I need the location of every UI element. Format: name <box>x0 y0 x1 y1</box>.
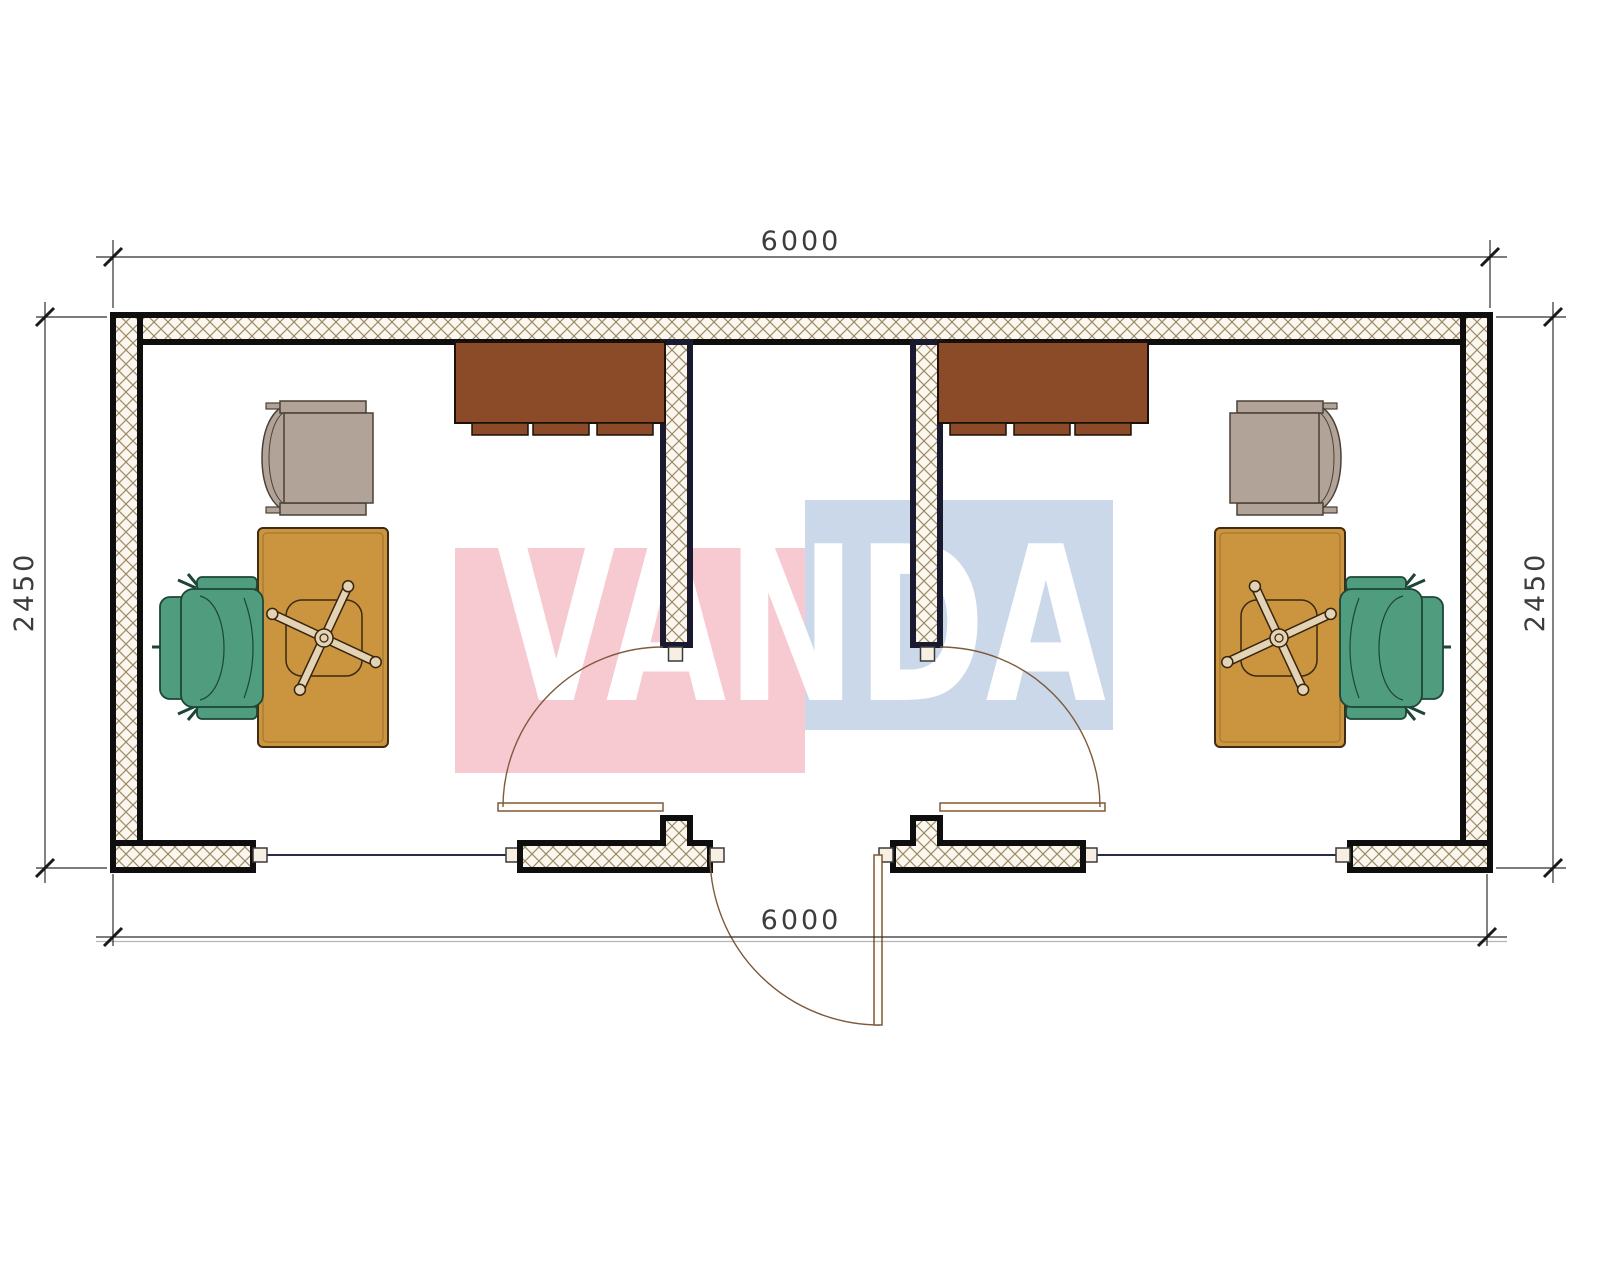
dimension-label-right: 2450 <box>1520 552 1551 633</box>
entry-door-swing-arc <box>710 855 880 1025</box>
dimension-label-top: 6000 <box>761 226 842 257</box>
floor-plan-sheet: VANDA 6000 6 <box>0 0 1600 1280</box>
entry-door-leaf <box>874 855 882 1025</box>
floor-plan-drawing: VANDA 6000 6 <box>0 0 1600 1280</box>
dimension-label-bottom: 6000 <box>761 905 842 936</box>
top-exterior-wall <box>113 315 1490 342</box>
dimension-label-left: 2450 <box>9 552 40 633</box>
watermark: VANDA <box>455 500 1113 773</box>
watermark-text: VANDA <box>496 500 1106 751</box>
entry-door <box>710 855 882 1025</box>
